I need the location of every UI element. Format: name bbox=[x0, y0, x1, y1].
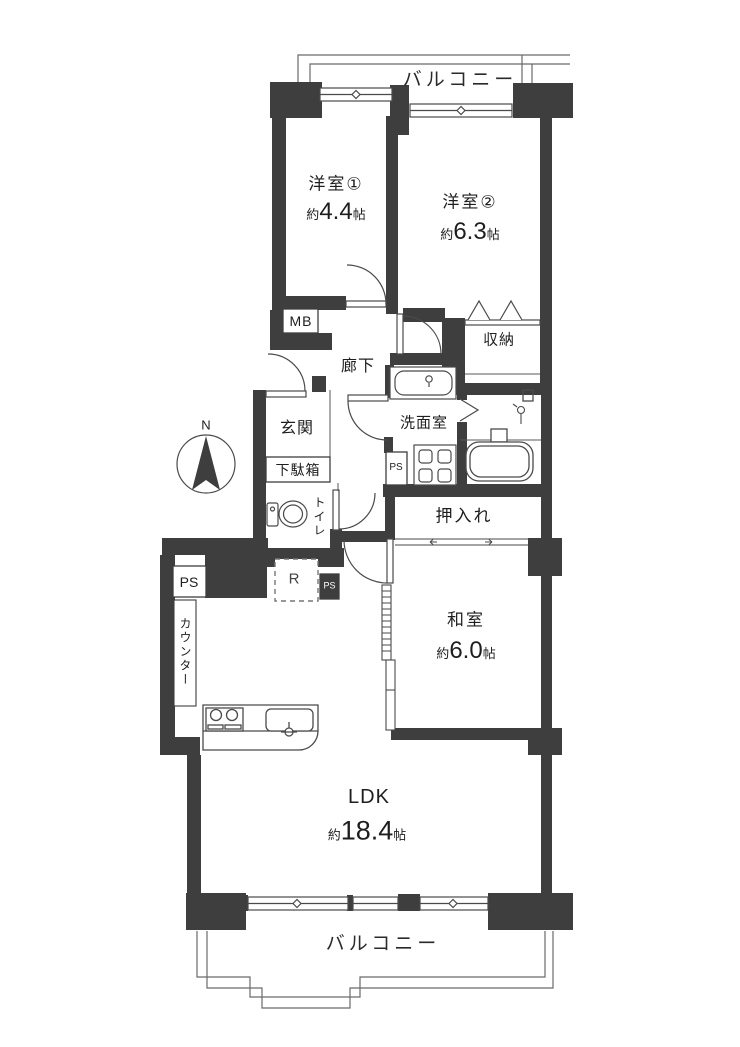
bedroom2-size: 約6.3帖 bbox=[440, 220, 499, 244]
window-ldk-mid bbox=[353, 897, 398, 910]
entrance-label: 玄関 bbox=[280, 421, 314, 437]
folding-door-bath bbox=[460, 399, 478, 421]
washbasin bbox=[390, 367, 456, 399]
bedroom2-name: 洋室② bbox=[442, 194, 497, 211]
window-bedroom2 bbox=[410, 104, 512, 117]
fridge-label: R bbox=[289, 572, 300, 587]
washing-machine-pan bbox=[414, 445, 456, 485]
counter-label: カウンター bbox=[179, 617, 191, 687]
ps-mid-label: PS bbox=[323, 582, 335, 591]
corridor-label: 廊下 bbox=[341, 359, 375, 375]
ps-left-label: PS bbox=[180, 575, 199, 589]
balcony-bottom-label: バルコニー bbox=[326, 935, 441, 954]
mb-label: MB bbox=[290, 314, 313, 328]
window-ldk-left bbox=[248, 897, 348, 910]
window-bedroom1 bbox=[320, 88, 392, 101]
door-ldk bbox=[344, 539, 393, 583]
bathroom bbox=[466, 390, 533, 481]
ldk-name: LDK bbox=[348, 787, 390, 807]
shower-icon bbox=[513, 404, 525, 424]
sliding-door-oshiire bbox=[395, 539, 528, 545]
toilet-fixture bbox=[267, 501, 307, 527]
floorplan: バルコニー バルコニー 洋室① 約4.4帖 洋室② 約6.3帖 和室 約6.0帖… bbox=[0, 0, 740, 1047]
toilet-label: トイレ bbox=[313, 496, 325, 538]
tub-faucet bbox=[491, 429, 507, 442]
ps-wash-label: PS bbox=[389, 463, 402, 473]
door-washroom bbox=[348, 395, 388, 440]
balcony-top-label: バルコニー bbox=[403, 71, 518, 90]
door-entrance bbox=[266, 354, 306, 397]
washitsu-name: 和室 bbox=[447, 612, 485, 629]
oshiire-label: 押入れ bbox=[436, 508, 493, 525]
sliding-door-washitsu bbox=[382, 585, 395, 730]
shoebox-label: 下駄箱 bbox=[276, 463, 321, 477]
door-bedroom1 bbox=[346, 265, 386, 307]
window-ldk-right bbox=[420, 897, 488, 910]
bedroom1-size: 約4.4帖 bbox=[306, 200, 365, 224]
washroom-label: 洗面室 bbox=[400, 416, 448, 431]
washitsu-size: 約6.0帖 bbox=[436, 639, 495, 663]
stove bbox=[206, 708, 243, 731]
floorplan-drawing bbox=[0, 0, 740, 1047]
door-toilet bbox=[333, 490, 375, 530]
compass-north-label: N bbox=[201, 419, 210, 432]
closet-label: 収納 bbox=[483, 333, 515, 348]
bedroom1-name: 洋室① bbox=[308, 176, 363, 193]
kitchen-unit bbox=[203, 705, 318, 750]
folding-door-closet bbox=[465, 301, 540, 325]
compass bbox=[177, 435, 235, 493]
ldk-size: 約18.4帖 bbox=[328, 818, 407, 845]
